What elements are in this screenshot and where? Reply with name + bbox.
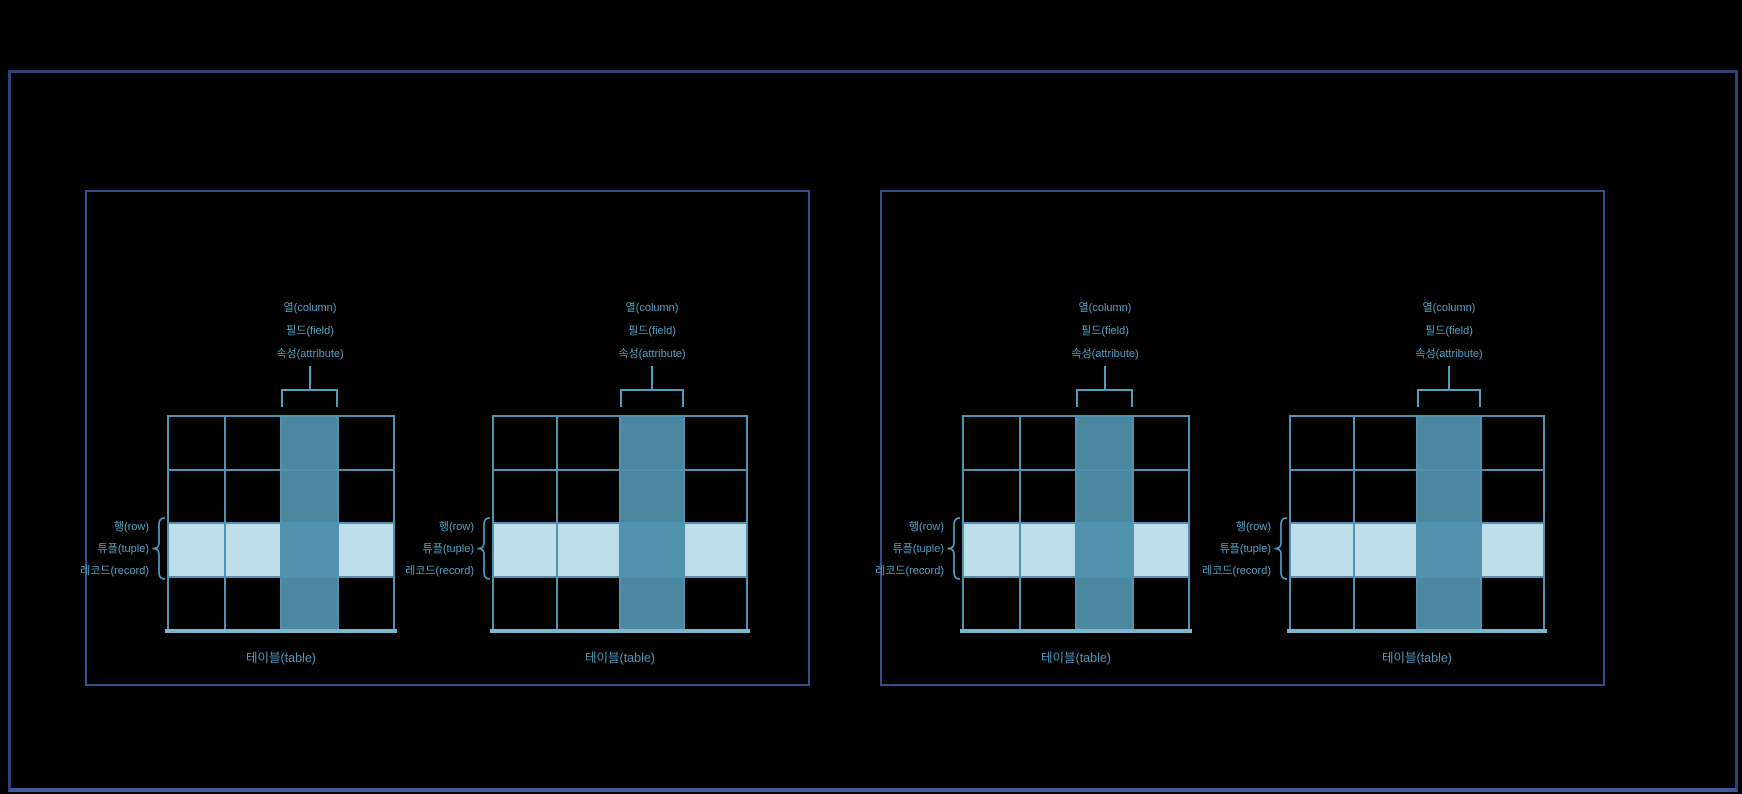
row-label: 행(row)	[1149, 516, 1271, 538]
column-annotation: 열(column) 필드(field) 속성(attribute)	[1379, 297, 1519, 366]
row-brace	[1274, 517, 1288, 580]
table-diagram-4: 열(column) 필드(field) 속성(attribute) 행(row)…	[0, 0, 1742, 794]
table-cell	[1482, 524, 1544, 576]
column-bracket	[1417, 389, 1481, 407]
table-cell	[1482, 578, 1544, 630]
table-cell	[1482, 417, 1544, 469]
table-caption: 테이블(table)	[1289, 647, 1545, 666]
table-cell	[1291, 471, 1353, 523]
table-cell	[1291, 578, 1353, 630]
row-annotation: 행(row) 튜플(tuple) 레코드(record)	[1149, 516, 1271, 582]
table-cell	[1355, 417, 1417, 469]
table-cell	[1355, 578, 1417, 630]
table-grid	[1289, 415, 1545, 629]
table-base-line	[1287, 629, 1547, 633]
table-cell	[1418, 578, 1480, 630]
attribute-label: 속성(attribute)	[1379, 343, 1519, 366]
column-label: 열(column)	[1379, 297, 1519, 320]
annotation-stem	[1448, 366, 1450, 389]
table-cell	[1482, 471, 1544, 523]
record-label: 레코드(record)	[1149, 560, 1271, 582]
table-cell	[1355, 524, 1417, 576]
table-cell	[1355, 471, 1417, 523]
table-cell	[1291, 417, 1353, 469]
table-cell	[1418, 471, 1480, 523]
field-label: 필드(field)	[1379, 320, 1519, 343]
table-cell	[1418, 524, 1480, 576]
diagram-canvas: 열(column) 필드(field) 속성(attribute) 행(row)…	[0, 0, 1742, 794]
table-cell	[1291, 524, 1353, 576]
tuple-label: 튜플(tuple)	[1149, 538, 1271, 560]
table-cell	[1418, 417, 1480, 469]
